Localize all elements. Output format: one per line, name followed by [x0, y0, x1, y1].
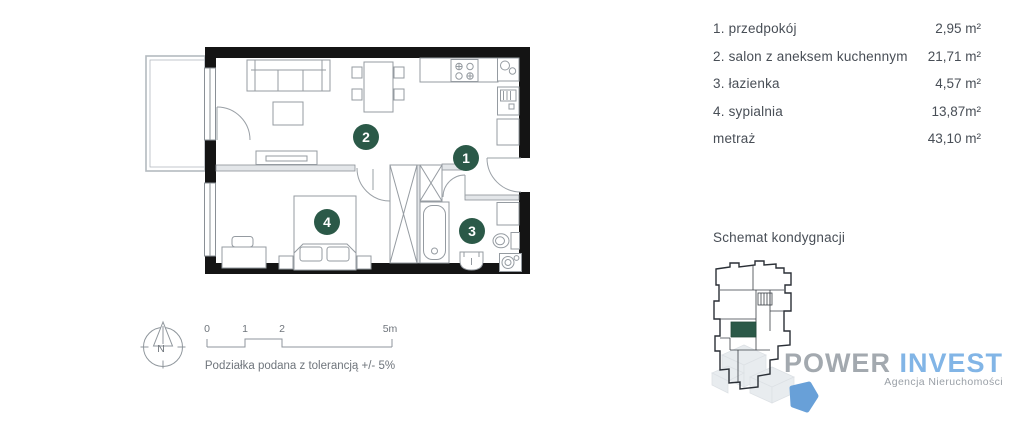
room-area: 13,87m² — [931, 103, 981, 120]
nightstand-left — [279, 256, 293, 269]
dining-table — [352, 62, 404, 112]
room-area: 2,95 m² — [935, 20, 981, 37]
room-legend: 1. przedpokój 2,95 m² 2. salon z aneksem… — [713, 20, 981, 158]
tv-cabinet — [256, 151, 317, 165]
legend-row: 1. przedpokój 2,95 m² — [713, 20, 981, 37]
room-label: 1. przedpokój — [713, 20, 797, 37]
legend-row: 4. sypialnia 13,87m² — [713, 103, 981, 120]
scale-tick-5m: 5m — [383, 323, 398, 335]
logo-word-invest: INVEST — [899, 348, 1003, 378]
room-label: 4. sypialnia — [713, 103, 783, 120]
bathroom-sink — [460, 252, 483, 270]
floor-schematic — [708, 255, 828, 420]
floor-plan: 1 2 3 4 N 0 1 2 5m Pod — [0, 0, 660, 425]
scale-caption: Podziałka podana z tolerancją +/- 5% — [205, 360, 395, 372]
bedroom-window — [205, 183, 216, 256]
room-area: 4,57 m² — [935, 75, 981, 92]
room-marker-4-label: 4 — [323, 214, 331, 230]
bathroom-door — [443, 175, 465, 197]
toilet — [493, 233, 520, 250]
kitchen-cabinet — [497, 119, 519, 145]
room-marker-2-label: 2 — [362, 129, 370, 145]
legend-row: 3. łazienka 4,57 m² — [713, 75, 981, 92]
scale-tick-0: 0 — [204, 323, 210, 335]
fridge — [498, 87, 520, 115]
page-background: 1 2 3 4 N 0 1 2 5m Pod — [0, 0, 1024, 425]
legend-row: 2. salon z aneksem kuchennym 21,71 m² — [713, 48, 981, 65]
total-area-label: metraż — [713, 130, 755, 147]
logo-word-power: POWER — [784, 348, 891, 378]
legend-row-total: metraż 43,10 m² — [713, 130, 981, 147]
kitchen-sink — [498, 58, 520, 81]
room-marker-3-label: 3 — [468, 223, 476, 239]
desk — [222, 237, 266, 269]
agency-logo: POWER INVEST Agencja Nieruchomości — [784, 350, 1003, 388]
coffee-table — [273, 102, 303, 125]
schematic-title: Schemat kondygnacji — [713, 230, 845, 245]
watermark-cubes — [712, 345, 794, 403]
stove — [451, 60, 478, 82]
sofa — [247, 60, 330, 91]
bathtub — [420, 202, 449, 263]
compass: N — [141, 322, 186, 369]
compass-n-label: N — [157, 343, 165, 355]
bedroom-door — [357, 168, 390, 201]
balcony-window — [205, 68, 216, 140]
balcony-door — [217, 107, 250, 140]
highlighted-unit — [731, 322, 756, 337]
room-label: 2. salon z aneksem kuchennym — [713, 48, 908, 65]
total-area-value: 43,10 m² — [928, 130, 981, 147]
bathroom-cabinet — [497, 203, 519, 226]
logo-wordmark: POWER INVEST — [784, 350, 1003, 376]
scale-tick-2: 2 — [279, 323, 285, 335]
room-marker-1-label: 1 — [462, 150, 470, 166]
room-label: 3. łazienka — [713, 75, 780, 92]
scale-bar: 0 1 2 5m Podziałka podana z tolerancją +… — [204, 323, 397, 372]
nightstand-right — [357, 256, 371, 269]
room-area: 21,71 m² — [928, 48, 981, 65]
balcony — [146, 56, 205, 171]
scale-tick-1: 1 — [242, 323, 248, 335]
wardrobe-tall — [390, 165, 417, 263]
washing-machine — [500, 254, 522, 272]
entrance-door — [487, 158, 521, 192]
wardrobe-small — [420, 165, 442, 201]
